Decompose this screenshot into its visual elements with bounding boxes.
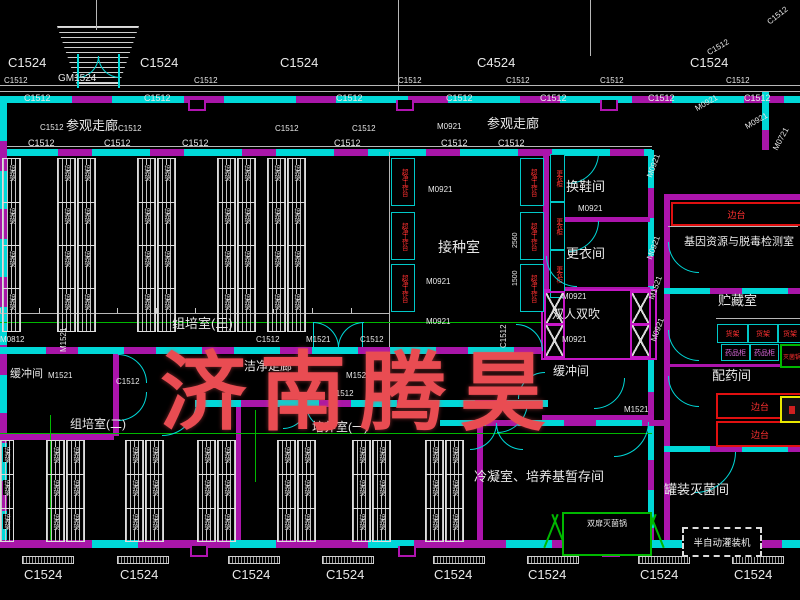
rack-shelf-line: [138, 245, 155, 246]
wall: [550, 217, 650, 222]
window-sill: [638, 556, 690, 564]
cad-label: C1512: [104, 139, 131, 148]
rack-label: 培养架: [243, 165, 249, 180]
cad-label: C1512: [194, 77, 218, 85]
culture-rack: 培养架培养架培养架: [197, 440, 216, 542]
shelf-3: 货架: [778, 324, 800, 343]
clean-bench: 超净工作台: [391, 158, 415, 206]
shelf-1: 货架: [717, 324, 748, 343]
rack-label: 培养架: [163, 294, 169, 309]
recessed-door: [398, 546, 416, 557]
rack-shelf-line: [353, 474, 370, 475]
rack-label: 培养架: [143, 294, 149, 309]
cad-label: C1512: [441, 139, 468, 148]
clean_bench-label: 超净工作台: [529, 168, 536, 196]
rack-shelf-line: [218, 202, 235, 203]
culture-rack: 培养架培养架培养架培养架: [237, 158, 256, 332]
line: [96, 0, 97, 30]
shelf-2: 货架: [748, 324, 778, 343]
rack-label: 培养架: [151, 447, 157, 462]
rack-shelf-line: [353, 508, 370, 509]
medicine-cabinet-label: 药品柜: [754, 348, 775, 358]
rack-label: 培养架: [451, 480, 457, 495]
rack-label: 培养架: [378, 514, 384, 529]
rack-label: 培养架: [163, 251, 169, 266]
rack-label: 培养架: [243, 208, 249, 223]
rack-label: 培养架: [8, 294, 14, 309]
rack-label: 培养架: [223, 447, 229, 462]
rack-label: 培养架: [3, 514, 9, 529]
rack-shelf-line: [218, 288, 235, 289]
rack-label: 培养架: [303, 447, 309, 462]
cad-label: C1524: [528, 568, 566, 581]
window-sill: [228, 556, 280, 564]
clean_bench-label: 超净工作台: [400, 222, 407, 250]
rack-shelf-line: [288, 288, 305, 289]
cad-label: C1524: [232, 568, 270, 581]
rack-label: 培养架: [223, 294, 229, 309]
rack-shelf-line: [426, 474, 443, 475]
culture-rack: 培养架培养架培养架培养架: [137, 158, 156, 332]
rack-label: 培养架: [52, 480, 58, 495]
rack-label: 培养架: [131, 447, 137, 462]
window-sill: [322, 556, 374, 564]
cad-label: C1524: [690, 56, 728, 69]
window-sill: [527, 556, 579, 564]
cad-label: C1512: [498, 139, 525, 148]
cad-label: C1512: [116, 378, 140, 386]
rack-label: 培养架: [131, 514, 137, 529]
rack-shelf-line: [3, 245, 20, 246]
cad-label: 冷凝室、培养基暂存间: [474, 470, 604, 483]
rack-shelf-line: [298, 474, 315, 475]
culture-rack: 培养架培养架培养架培养架: [217, 158, 236, 332]
cad-label: C1512: [726, 77, 750, 85]
cad-label: M0921: [428, 186, 452, 194]
rack-shelf-line: [198, 508, 215, 509]
medicine-cabinet-2: 药品柜: [750, 344, 779, 361]
rack-shelf-line: [278, 474, 295, 475]
clean-bench: 超净工作台: [391, 212, 415, 260]
cad-label: C1512: [4, 77, 28, 85]
rack-shelf-line: [126, 474, 143, 475]
rack-label: 培养架: [293, 251, 299, 266]
shelf-label: 货架: [783, 329, 797, 339]
window-sill: [22, 556, 74, 564]
door-arc: [668, 330, 699, 361]
cad-label: C1512: [40, 124, 64, 132]
air-shower-unit: [630, 323, 651, 358]
cad-label: C1512: [648, 94, 675, 103]
cad-label: M0921: [437, 123, 461, 131]
cad-label: C1512: [446, 94, 473, 103]
cad-label: 贮藏室: [718, 294, 757, 307]
locker-cabinet: 更衣柜: [550, 202, 565, 250]
rack-label: 培养架: [63, 165, 69, 180]
cad-label: C1512: [600, 77, 624, 85]
shelf-label: 货架: [756, 329, 770, 339]
rack-label: 培养架: [273, 251, 279, 266]
rack-shelf-line: [138, 202, 155, 203]
cad-label: C1512: [744, 94, 771, 103]
medicine-cabinet-1: 药品柜: [721, 344, 750, 361]
line: [0, 85, 800, 86]
rack-shelf-line: [146, 474, 163, 475]
floor-plan: 培养架培养架培养架培养架培养架培养架培养架培养架培养架培养架培养架培养架培养架培…: [0, 0, 800, 600]
culture-rack: 培养架培养架培养架培养架: [57, 158, 76, 332]
double-door-autoclave: 双扉灭菌锅: [562, 512, 652, 556]
line: [590, 0, 591, 56]
rack-shelf-line: [47, 474, 64, 475]
rack-label: 培养架: [151, 514, 157, 529]
rack-label: 培养架: [143, 208, 149, 223]
window-sill: [732, 556, 784, 564]
cad-label: 基因资源与脱毒检测室: [684, 237, 794, 248]
locker-cabinet: 更衣柜: [550, 154, 565, 202]
rack-shelf-line: [238, 288, 255, 289]
cad-label: C1512: [182, 139, 209, 148]
rack-label: 培养架: [223, 251, 229, 266]
culture-rack: 培养架培养架培养架培养架: [157, 158, 176, 332]
rack-label: 培养架: [451, 447, 457, 462]
rack-label: 培养架: [303, 480, 309, 495]
rack-label: 培养架: [431, 447, 437, 462]
rack-label: 培养架: [358, 480, 364, 495]
rack-label: 培养架: [273, 294, 279, 309]
clean-bench: 超净工作台: [520, 212, 544, 260]
rack-label: 培养架: [283, 447, 289, 462]
rack-label: 培养架: [378, 447, 384, 462]
side-bench-label: 边台: [727, 208, 745, 221]
rack-label: 培养架: [72, 514, 78, 529]
culture-rack: 培养架培养架培养架: [352, 440, 371, 542]
rack-shelf-line: [67, 474, 84, 475]
rack-label: 培养架: [8, 251, 14, 266]
rack-label: 培养架: [243, 251, 249, 266]
culture-rack: 培养架培养架培养架: [445, 440, 464, 542]
clean-bench: 超净工作台: [520, 264, 544, 312]
cad-label: M0721: [772, 126, 791, 151]
rack-shelf-line: [238, 245, 255, 246]
cad-label: 接种室: [438, 240, 480, 254]
cad-label: C1524: [326, 568, 364, 581]
cad-label: C1512: [275, 125, 299, 133]
recessed-door: [396, 100, 414, 111]
cad-label: C1524: [640, 568, 678, 581]
rack-shelf-line: [373, 508, 390, 509]
rack-label: 培养架: [83, 294, 89, 309]
small-sterilizer-label: 灭菌锅: [783, 352, 800, 361]
cad-label: C1512: [28, 139, 55, 148]
rack-shelf-line: [1, 474, 13, 475]
rack-shelf-line: [218, 474, 235, 475]
culture-rack: 培养架培养架培养架培养架: [2, 158, 21, 332]
door-arc: [668, 376, 699, 407]
rack-shelf-line: [58, 202, 75, 203]
culture-rack: 培养架培养架培养架: [425, 440, 444, 542]
rack-label: 培养架: [131, 480, 137, 495]
rack-label: 培养架: [378, 480, 384, 495]
rack-shelf-line: [446, 508, 463, 509]
culture-rack: 培养架培养架培养架: [277, 440, 296, 542]
culture-rack: 培养架培养架培养架培养架: [287, 158, 306, 332]
recessed-door: [600, 100, 618, 111]
medicine-cabinet-label: 药品柜: [725, 348, 746, 358]
line: [668, 226, 798, 227]
small-sterilizer: 灭菌锅: [780, 344, 800, 368]
culture-rack: 培养架培养架培养架: [145, 440, 164, 542]
cad-label: M0921: [426, 278, 450, 286]
rack-shelf-line: [218, 245, 235, 246]
side-bench-label: 边台: [751, 428, 769, 441]
rack-label: 培养架: [83, 251, 89, 266]
cad-label: C1524: [8, 56, 46, 69]
cad-label: C1524: [140, 56, 178, 69]
rack-label: 培养架: [8, 165, 14, 180]
rack-label: 培养架: [203, 447, 209, 462]
rack-shelf-line: [278, 508, 295, 509]
rack-label: 培养架: [3, 480, 9, 495]
rack-label: 培养架: [293, 294, 299, 309]
cad-label: C1512: [118, 125, 142, 133]
line: [0, 146, 652, 147]
autoclave-label: 双扉灭菌锅: [587, 518, 627, 529]
cad-label: 更衣间: [566, 247, 605, 260]
rack-shelf-line: [288, 202, 305, 203]
rack-label: 培养架: [163, 208, 169, 223]
rack-label: 培养架: [52, 447, 58, 462]
cad-label: GM1524: [58, 74, 96, 84]
rack-shelf-line: [1, 508, 13, 509]
recessed-door: [190, 546, 208, 557]
rack-shelf-line: [138, 288, 155, 289]
rack-label: 培养架: [163, 165, 169, 180]
side-bench-top: 边台: [671, 202, 800, 226]
line: [0, 91, 800, 92]
door-arc: [594, 378, 625, 409]
rack-label: 培养架: [63, 294, 69, 309]
culture-rack: 培养架培养架培养架: [46, 440, 65, 542]
rack-shelf-line: [198, 474, 215, 475]
rack-shelf-line: [298, 508, 315, 509]
cad-label: M0812: [0, 336, 24, 344]
culture-rack: 培养架培养架培养架培养架: [77, 158, 96, 332]
cad-label: C1512: [352, 125, 376, 133]
rack-shelf-line: [47, 508, 64, 509]
clean-bench: 超净工作台: [391, 264, 415, 312]
rack-shelf-line: [158, 245, 175, 246]
cad-label: C1512: [334, 139, 361, 148]
rack-label: 培养架: [223, 165, 229, 180]
rack-label: 培养架: [293, 165, 299, 180]
cad-label: C1524: [734, 568, 772, 581]
clean_bench-label: 超净工作台: [400, 168, 407, 196]
culture-rack: 培养架培养架培养架: [0, 440, 14, 542]
cad-label: M1521: [48, 372, 72, 380]
locker-label: 更衣柜: [554, 170, 561, 187]
cad-label: 配药间: [712, 369, 751, 382]
cad-label: C1512: [336, 94, 363, 103]
rack-label: 培养架: [223, 208, 229, 223]
window-sill: [117, 556, 169, 564]
cad-label: C1512: [540, 94, 567, 103]
rack-shelf-line: [3, 288, 20, 289]
cad-label: C1512: [766, 5, 790, 26]
rack-label: 培养架: [63, 251, 69, 266]
rack-label: 培养架: [358, 514, 364, 529]
sink-highlight: [780, 396, 800, 423]
rack-label: 培养架: [431, 480, 437, 495]
rack-label: 培养架: [83, 208, 89, 223]
rack-shelf-line: [288, 245, 305, 246]
filler-label: 半自动灌装机: [693, 535, 750, 549]
rack-shelf-line: [426, 508, 443, 509]
clean-bench: 超净工作台: [520, 158, 544, 206]
rack-label: 培养架: [63, 208, 69, 223]
culture-rack: 培养架培养架培养架: [217, 440, 236, 542]
cad-label: C1524: [280, 56, 318, 69]
rack-label: 培养架: [243, 294, 249, 309]
rack-label: 培养架: [451, 514, 457, 529]
clean_bench-label: 超净工作台: [400, 274, 407, 302]
rack-label: 培养架: [72, 447, 78, 462]
cad-label: M1521: [60, 328, 68, 352]
cad-label: C4524: [477, 56, 515, 69]
culture-rack: 培养架培养架培养架: [297, 440, 316, 542]
rack-shelf-line: [158, 202, 175, 203]
rack-label: 培养架: [431, 514, 437, 529]
rack-shelf-line: [268, 202, 285, 203]
cad-label: 1500: [512, 270, 519, 286]
rack-shelf-line: [446, 474, 463, 475]
cad-label: C1524: [24, 568, 62, 581]
rack-label: 培养架: [293, 208, 299, 223]
rack-label: 培养架: [223, 480, 229, 495]
clean_bench-label: 超净工作台: [529, 274, 536, 302]
rack-label: 培养架: [143, 165, 149, 180]
semi-auto-filler: 半自动灌装机: [682, 527, 762, 557]
culture-rack: 培养架培养架培养架: [372, 440, 391, 542]
culture-rack: 培养架培养架培养架: [125, 440, 144, 542]
line: [716, 318, 800, 319]
cad-label: C1512: [506, 77, 530, 85]
clean_bench-label: 超净工作台: [529, 222, 536, 250]
rack-shelf-line: [146, 508, 163, 509]
rack-shelf-line: [373, 474, 390, 475]
window-sill: [433, 556, 485, 564]
rack-label: 培养架: [8, 208, 14, 223]
cad-label: 组培室(二): [70, 418, 126, 430]
shelf-label: 货架: [726, 329, 740, 339]
rack-shelf-line: [268, 288, 285, 289]
recessed-door: [188, 100, 206, 111]
cad-label: M0921: [562, 336, 586, 344]
culture-rack: 培养架培养架培养架: [66, 440, 85, 542]
rack-label: 培养架: [151, 480, 157, 495]
cad-label: 2560: [512, 232, 519, 248]
cad-label: M0921: [562, 293, 586, 301]
wall: [664, 194, 800, 200]
rack-label: 培养架: [273, 208, 279, 223]
rack-label: 培养架: [203, 514, 209, 529]
cad-label: C1512: [24, 94, 51, 103]
locker-label: 更衣柜: [554, 218, 561, 235]
rack-shelf-line: [3, 202, 20, 203]
rack-label: 培养架: [3, 447, 9, 462]
rack-shelf-line: [78, 202, 95, 203]
rack-label: 培养架: [273, 165, 279, 180]
side-bench-2: 边台: [716, 421, 800, 447]
cad-label: 参观走廊: [487, 117, 539, 130]
cad-label: 参观走廊: [66, 119, 118, 132]
rack-label: 培养架: [223, 514, 229, 529]
rack-shelf-line: [158, 288, 175, 289]
line: [389, 152, 390, 348]
cad-label: 换鞋间: [566, 180, 605, 193]
side-bench-label: 边台: [751, 400, 769, 413]
cad-label: 缓冲间: [10, 369, 43, 380]
cad-label: M1521: [624, 406, 648, 414]
cad-label: 罐装灭菌间: [664, 483, 729, 496]
rack-label: 培养架: [283, 480, 289, 495]
rack-shelf-line: [238, 202, 255, 203]
rack-label: 培养架: [358, 447, 364, 462]
rack-label: 培养架: [52, 514, 58, 529]
rack-shelf-line: [78, 288, 95, 289]
rack-shelf-line: [126, 508, 143, 509]
rack-label: 培养架: [143, 251, 149, 266]
door-arc: [614, 422, 649, 457]
cad-label: C1524: [434, 568, 472, 581]
rack-shelf-line: [78, 245, 95, 246]
rack-shelf-line: [58, 288, 75, 289]
cad-label: C1512: [398, 77, 422, 85]
rack-shelf-line: [58, 245, 75, 246]
rack-shelf-line: [67, 508, 84, 509]
culture-rack: 培养架培养架培养架培养架: [267, 158, 286, 332]
rack-label: 培养架: [83, 165, 89, 180]
rack-shelf-line: [218, 508, 235, 509]
rack-shelf-line: [268, 245, 285, 246]
rack-label: 培养架: [203, 480, 209, 495]
cad-label: 双人双吹: [552, 308, 600, 320]
cad-label: C1512: [144, 94, 171, 103]
cad-label: M0921: [578, 205, 602, 213]
watermark: 济南腾昊: [160, 322, 560, 447]
rack-label: 培养架: [72, 480, 78, 495]
rack-label: 培养架: [283, 514, 289, 529]
cad-label: C1524: [120, 568, 158, 581]
rack-label: 培养架: [303, 514, 309, 529]
